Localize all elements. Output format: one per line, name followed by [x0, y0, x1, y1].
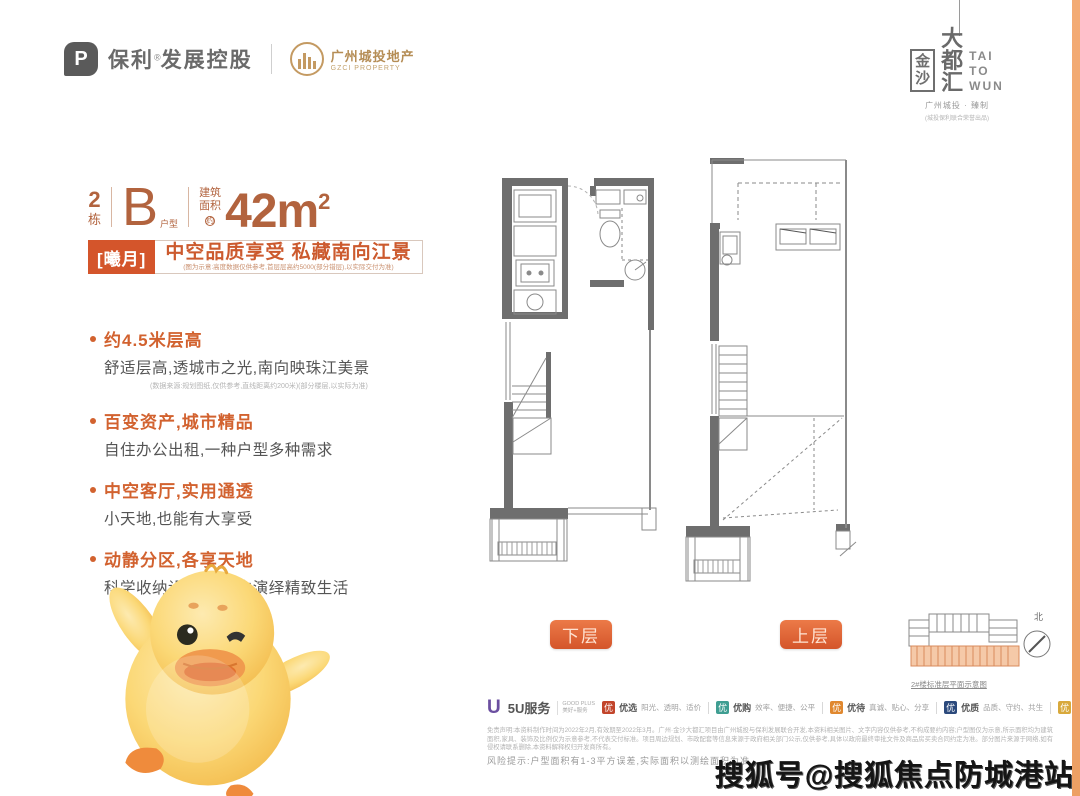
headline-box: 中空品质享受 私藏南向江景 (图为示意:高度数据仅供参考,首层层高约5000(部…: [155, 240, 422, 274]
headline-bar: [曦月] 中空品质享受 私藏南向江景 (图为示意:高度数据仅供参考,首层层高约5…: [88, 240, 423, 274]
sohu-watermark: 搜狐号@搜狐焦点防城港站: [715, 752, 1074, 794]
services-bar: U 5U服务 GOOD PLUS美好+服务 优 优选 阳光、透明、适价 优 优购…: [487, 698, 1080, 717]
floorplan-lower: [462, 150, 662, 580]
service-badge-icon: 优: [716, 701, 729, 714]
brand-latin: TAI TO WUN: [969, 49, 1004, 94]
feature-desc: 自住办公出租,一种户型多种需求: [104, 438, 420, 460]
bullet-dot-icon: [90, 336, 96, 342]
brand-credit: 广州城投 · 臻制: [892, 100, 1022, 111]
gzci-name: 广州城投地产: [331, 46, 415, 65]
feature-item: 中空客厅,实用通透 小天地,也能有大享受: [90, 477, 420, 529]
header-logos: P 保利®发展控股 广州城投地产 GZCI PROPERTY: [64, 42, 415, 76]
service-item: 优 优待 真诚、贴心、分享: [830, 701, 929, 714]
logo-divider: [271, 44, 272, 74]
feature-note: (数据来源:规划图纸,仅供参考,直线距离约200米)(部分楼层,以实际为准): [150, 381, 420, 391]
feature-item: 百变资产,城市精品 自住办公出租,一种户型多种需求: [90, 408, 420, 460]
jinsha-seal: 金 沙: [910, 49, 935, 92]
headline-tag: [曦月]: [88, 240, 155, 274]
risk-note: 风险提示:户型面积有1-3平方误差,实际面积以测绘面积为准: [487, 754, 750, 767]
headline-title: 中空品质享受 私藏南向江景: [165, 243, 411, 263]
feature-desc: 舒适层高,透城市之光,南向映珠江美景: [104, 356, 420, 378]
service-badge-icon: 优: [602, 701, 615, 714]
headline-note: (图为示意:高度数据仅供参考,首层层高约5000(部分错层),以实际交付为准): [165, 263, 411, 272]
service-badge-icon: 优: [944, 701, 957, 714]
bullet-dot-icon: [90, 487, 96, 493]
disclaimer-text: 免责声明:本资料制作时间为2022年2月,有效期至2022年3月。广州·金沙大都…: [487, 727, 1053, 753]
bullet-dot-icon: [90, 418, 96, 424]
feature-desc: 小天地,也能有大享受: [104, 507, 420, 529]
poly-logo-icon: P: [64, 42, 98, 76]
unit-type-letter: B: [122, 180, 158, 234]
upper-floor-label: 上层: [780, 620, 842, 649]
gzci-logo: 广州城投地产 GZCI PROPERTY: [290, 42, 415, 76]
unit-title: 2 栋 B 户型 建筑 面积 约 42m2: [88, 178, 329, 236]
u-service-icon: U: [487, 699, 501, 717]
area-value: 42m2: [225, 178, 329, 236]
keyplan: 北 2#楼标准层平面示意图: [903, 606, 1053, 690]
dadu-column: 大 都 汇: [941, 28, 963, 94]
service-item: 优 优选 阳光、透明、适价: [602, 701, 701, 714]
poly-logo-text: 保利®发展控股: [108, 44, 253, 74]
keyplan-caption: 2#楼标准层平面示意图: [911, 679, 1053, 690]
edge-accent-strip: [1072, 0, 1080, 796]
poster-canvas: P 保利®发展控股 广州城投地产 GZCI PROPERTY 金 沙 大 都: [0, 0, 1080, 796]
compass-icon: 北: [1024, 612, 1050, 657]
poly-name: 保利: [108, 49, 154, 72]
poly-reg-mark: ®: [154, 53, 161, 63]
service-item: 优 优质 品质、守约、共生: [944, 701, 1043, 714]
feature-title: 约4.5米层高: [104, 326, 203, 351]
keyplan-diagram: 北: [903, 606, 1053, 672]
lower-floor-label: 下层: [550, 620, 612, 649]
area-prefix: 建筑 面积 约: [199, 188, 221, 226]
service-badge-icon: 优: [1058, 701, 1071, 714]
poly-suffix: 发展控股: [161, 49, 253, 72]
services-name: 5U服务: [508, 698, 551, 717]
feature-item: 约4.5米层高 舒适层高,透城市之光,南向映珠江美景 (数据来源:规划图纸,仅供…: [90, 326, 420, 391]
services-sub: GOOD PLUS美好+服务: [557, 701, 595, 715]
unit-type-label: 户型: [160, 217, 178, 230]
service-item: 优 优购 效率、便捷、公平: [716, 701, 815, 714]
duck-mascot-image: [84, 552, 332, 796]
project-brand: 金 沙 大 都 汇 TAI TO WUN 广州城投 · 臻制 (城投保利联合荣誉…: [892, 28, 1022, 122]
jinsha-char-1: 金: [915, 54, 930, 70]
gzci-building-icon: [290, 42, 324, 76]
north-label: 北: [1034, 612, 1043, 622]
gzci-name-en: GZCI PROPERTY: [331, 65, 415, 72]
feature-title: 中空客厅,实用通透: [104, 477, 254, 502]
brand-credit-sub: (城投保利联合荣誉出品): [892, 113, 1022, 122]
jinsha-char-2: 沙: [915, 71, 930, 87]
feature-title: 百变资产,城市精品: [104, 408, 254, 433]
service-badge-icon: 优: [830, 701, 843, 714]
block-number: 2 栋: [88, 189, 101, 226]
floorplan-upper: [668, 148, 878, 603]
